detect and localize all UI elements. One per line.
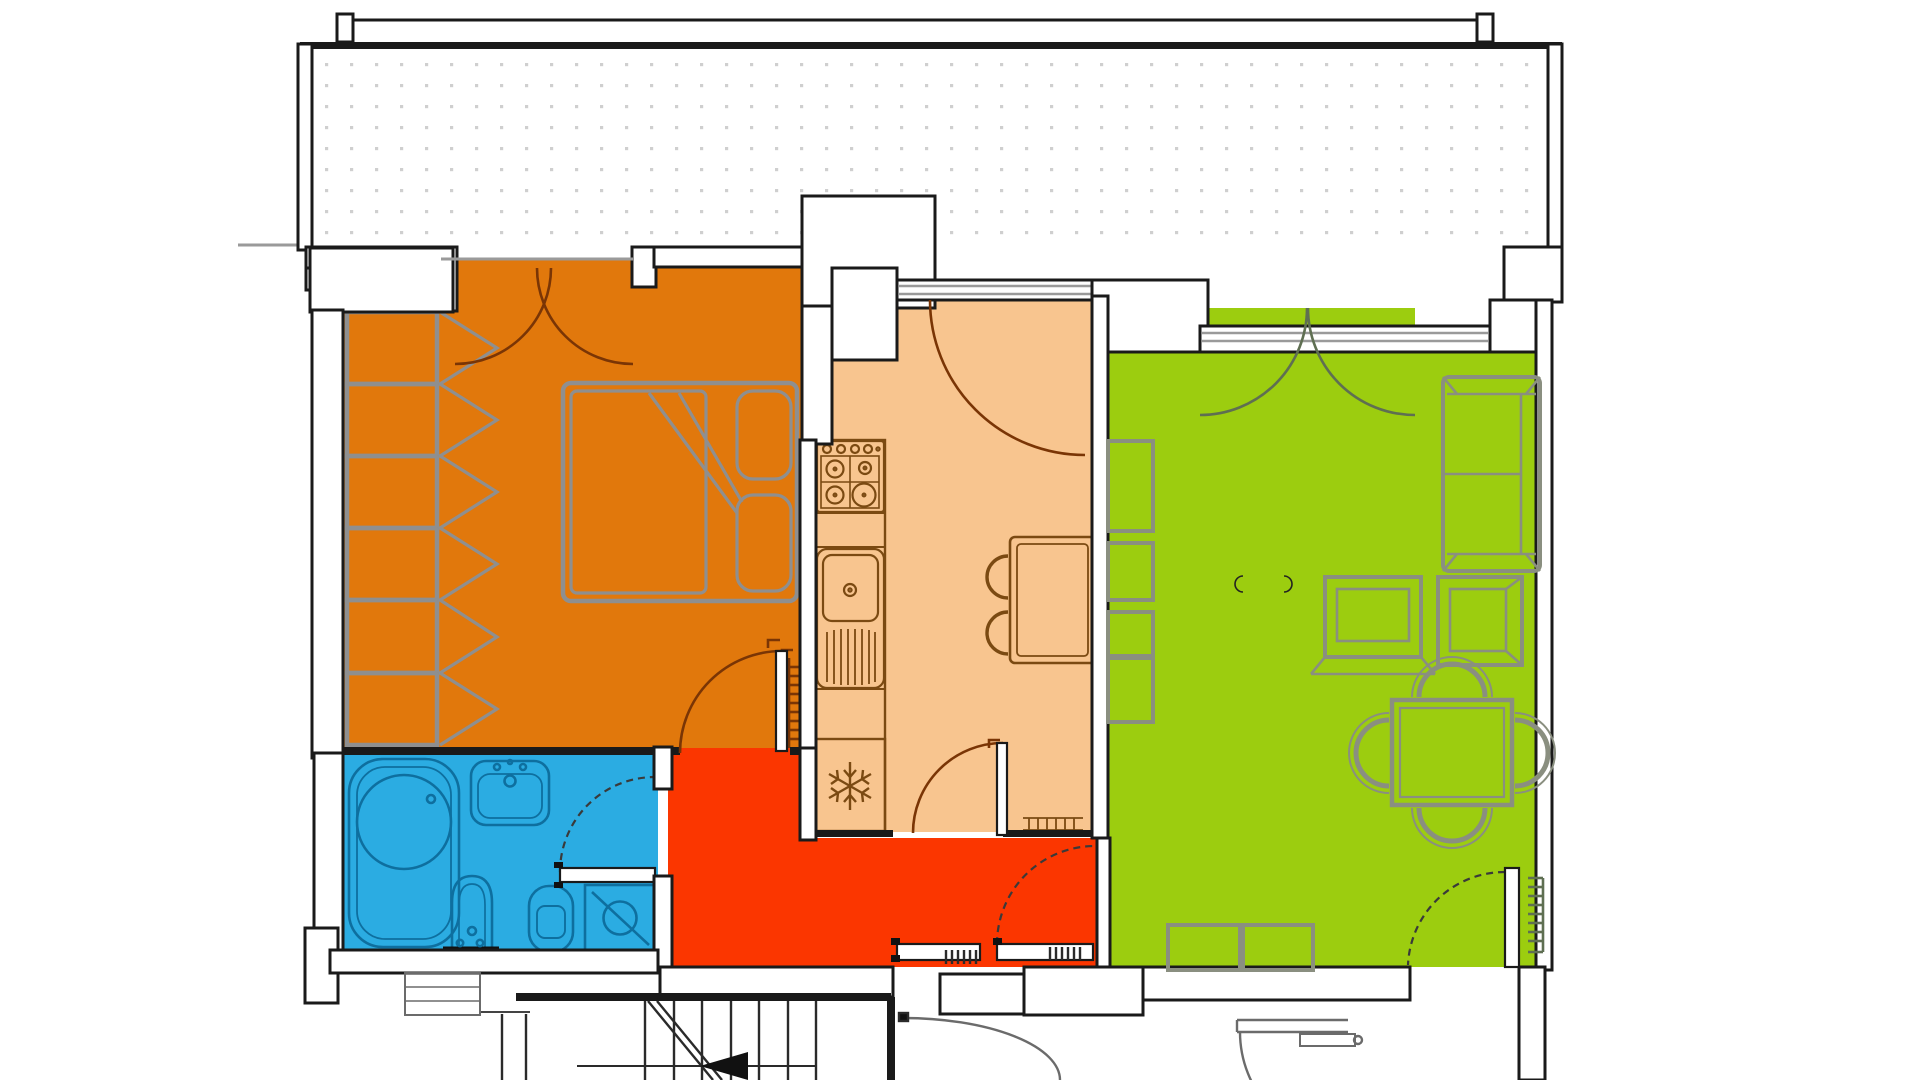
direction-arrow bbox=[700, 1052, 748, 1080]
living-window-band bbox=[1200, 326, 1490, 352]
wall bbox=[800, 440, 816, 752]
wall bbox=[330, 950, 658, 973]
wall bbox=[802, 306, 832, 444]
bedroom-door-leaf bbox=[776, 651, 787, 751]
kitchen-floor bbox=[815, 296, 1092, 832]
wall bbox=[1097, 838, 1110, 969]
wall bbox=[660, 967, 893, 997]
light-shaft bbox=[405, 973, 480, 1015]
wall bbox=[343, 747, 680, 755]
entry-door-leaf bbox=[997, 944, 1093, 960]
wall bbox=[1092, 296, 1108, 838]
door-handle bbox=[891, 938, 900, 945]
terrace-floor bbox=[313, 50, 1548, 196]
bathroom-floor bbox=[343, 751, 658, 952]
door-handle bbox=[554, 882, 563, 888]
wall bbox=[1519, 967, 1545, 1080]
kitchen-door-leaf bbox=[997, 743, 1007, 835]
terrace-floor bbox=[313, 196, 802, 247]
right-step-wall bbox=[1504, 247, 1562, 302]
wall bbox=[654, 747, 672, 789]
wall bbox=[940, 974, 1024, 1014]
floor-plan-drawing bbox=[0, 0, 1920, 1080]
door-handle bbox=[993, 938, 1002, 945]
hinge-mark bbox=[899, 1013, 908, 1021]
wall bbox=[1024, 967, 1143, 1015]
wall-notch bbox=[1477, 14, 1493, 42]
wall bbox=[816, 830, 893, 837]
stair-top-wall bbox=[516, 993, 891, 1001]
door-jamb bbox=[632, 247, 656, 287]
entry-door-leaf bbox=[897, 944, 980, 960]
floor-plan-stage bbox=[0, 0, 1920, 1080]
bathroom-door-leaf bbox=[560, 868, 655, 882]
wall bbox=[1003, 830, 1093, 837]
terrace-floor bbox=[935, 196, 1548, 247]
living-exit-door-leaf bbox=[1505, 868, 1519, 967]
door-handle bbox=[891, 955, 900, 962]
stair-right-wall bbox=[887, 997, 895, 1080]
downstairs-door-swing bbox=[1240, 1032, 1352, 1080]
pillar bbox=[310, 248, 453, 312]
left-wall bbox=[312, 310, 343, 758]
wall bbox=[800, 748, 816, 840]
kitchen-window-band bbox=[897, 280, 1093, 300]
wall bbox=[654, 247, 806, 267]
wall bbox=[832, 268, 897, 360]
hinge-dot bbox=[1354, 1036, 1362, 1044]
wall-notch bbox=[337, 14, 353, 42]
left-outer-wall bbox=[298, 44, 312, 250]
right-outer-wall bbox=[1548, 44, 1562, 256]
left-wall bbox=[314, 753, 343, 953]
top-wall bbox=[300, 42, 1562, 49]
door-handle bbox=[554, 862, 563, 868]
landing-door-swing bbox=[903, 1018, 1060, 1080]
stair-diagonal bbox=[648, 1001, 713, 1080]
downstairs-door bbox=[1237, 1020, 1362, 1080]
